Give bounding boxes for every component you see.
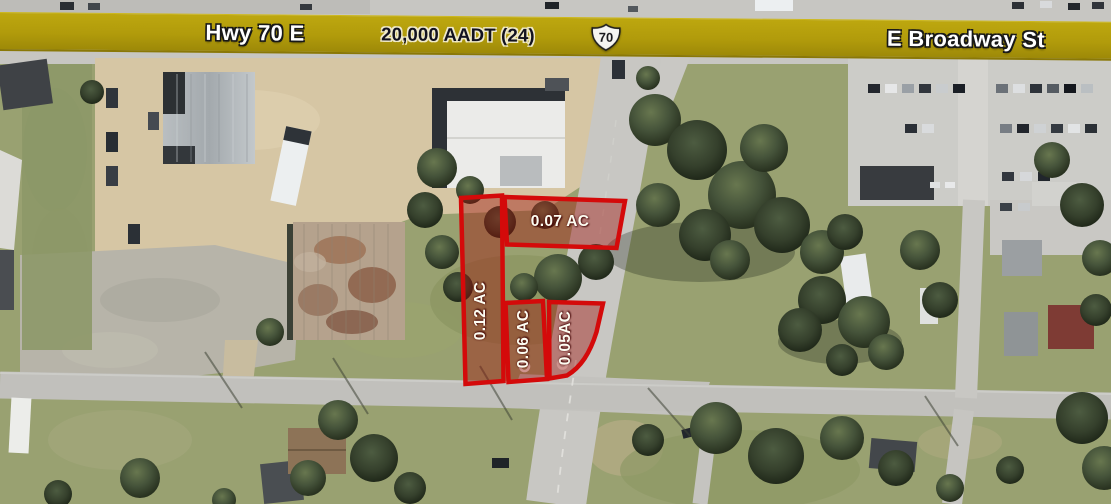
aerial-map: Hwy 70 E 20,000 AADT (24) 70 E Broadway … [0,0,1111,504]
rusty-roof-building [287,222,405,340]
parcel-label-007: 0.07 AC [518,213,602,231]
parcel-label-005: 0.05AC [557,296,575,380]
satellite-imagery [0,0,1111,504]
route-70-shield-icon: 70 [590,23,622,51]
highway-label: Hwy 70 E [193,15,317,52]
parcel-label-006: 0.06 AC [515,297,533,381]
metal-roof-building [163,72,255,164]
street-label: E Broadway St [864,21,1068,59]
route-shield-number: 70 [599,30,614,45]
traffic-count-label: 20,000 AADT (24) [368,16,548,54]
parcel-label-012: 0.12 AC [472,269,490,353]
